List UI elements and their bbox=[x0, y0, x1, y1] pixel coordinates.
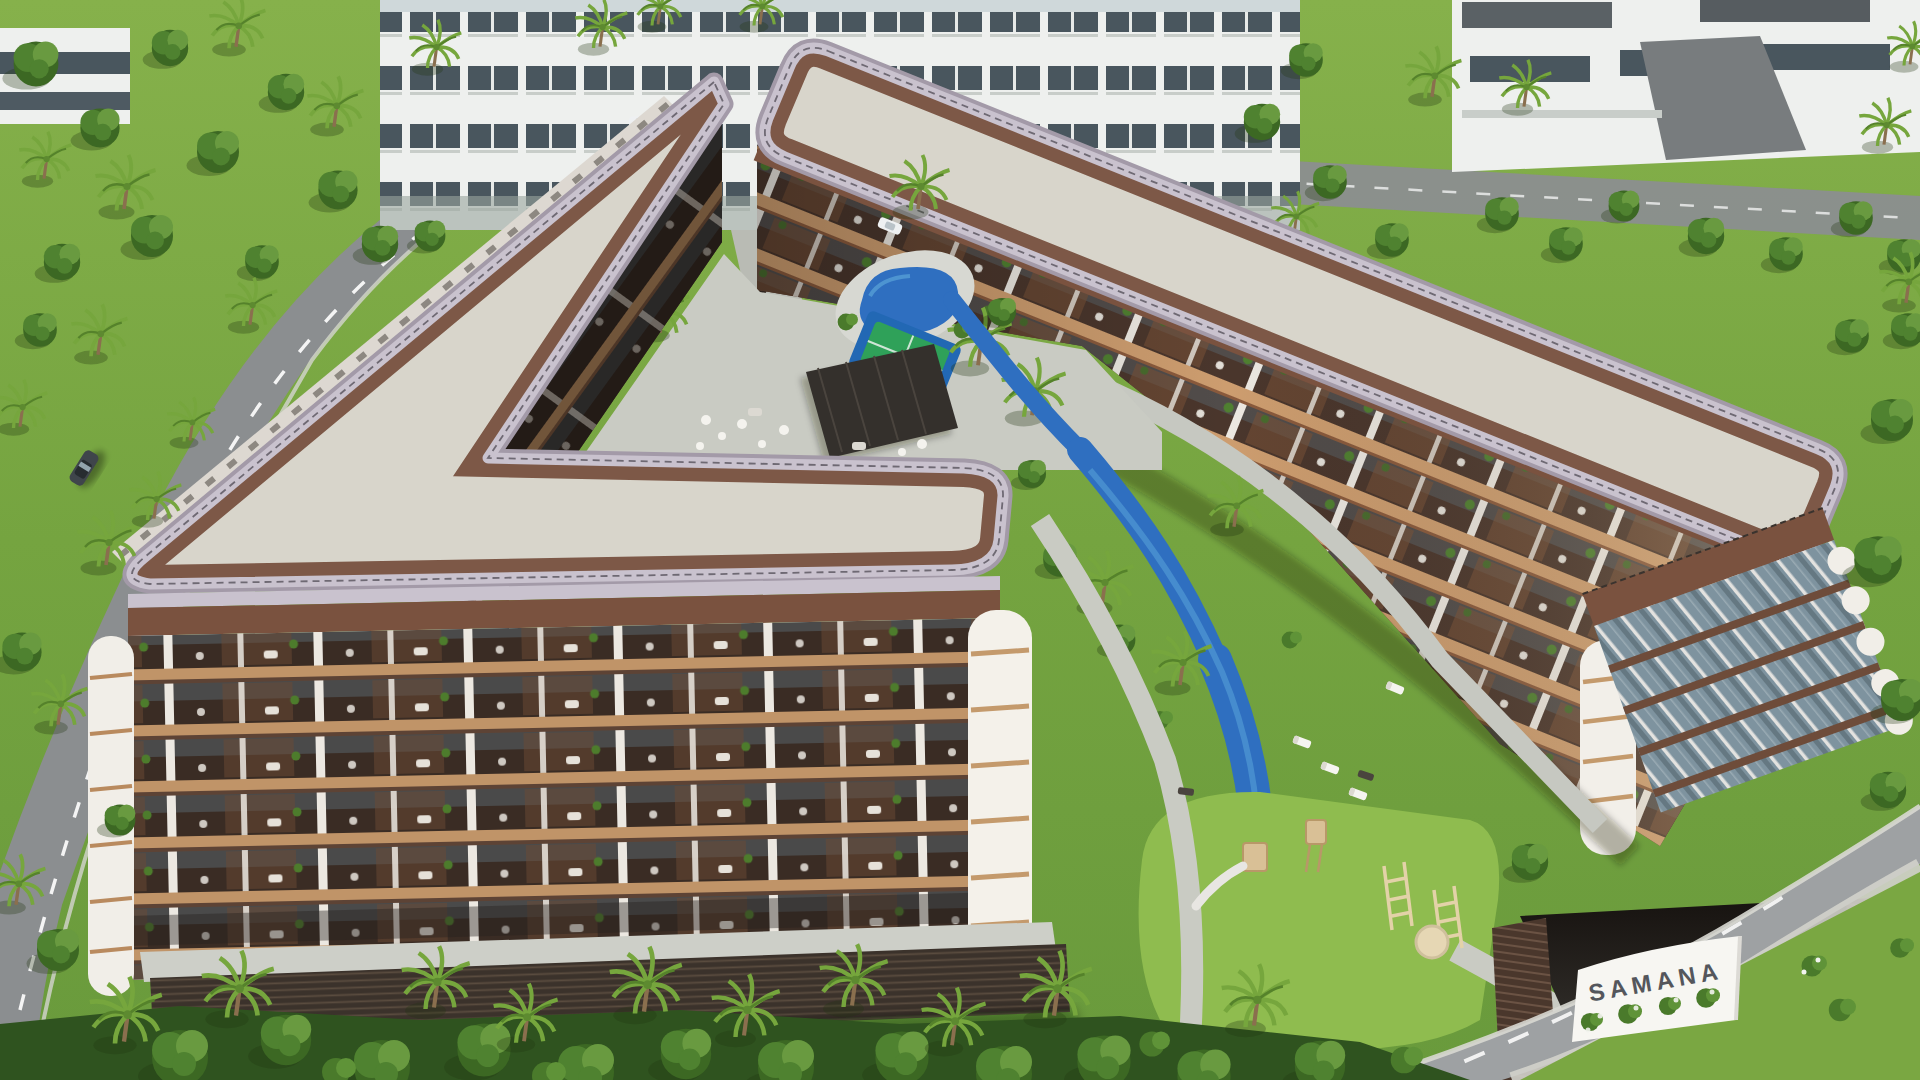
aerial-render: SAMANA bbox=[0, 0, 1920, 1080]
left-building-front-facade bbox=[128, 576, 1000, 980]
sand-pit bbox=[1416, 926, 1448, 958]
right-corner-stack bbox=[968, 610, 1032, 958]
